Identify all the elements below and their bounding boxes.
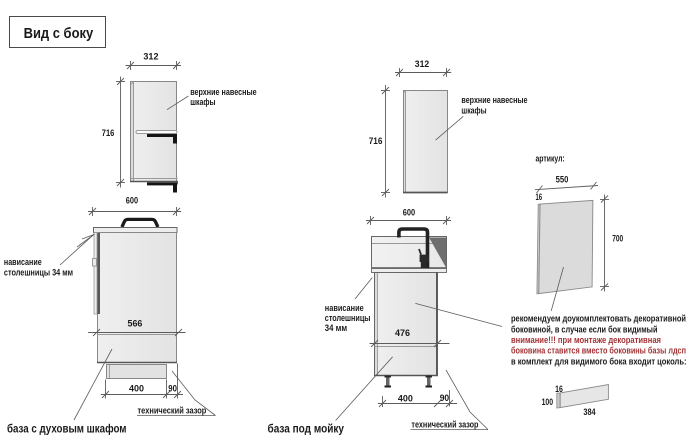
svg-text:600: 600 [403,208,415,218]
svg-text:34 мм: 34 мм [325,323,348,333]
svg-text:шкафы: шкафы [190,97,215,107]
svg-text:верхние навесные: верхние навесные [461,95,527,105]
svg-text:боковина ставится вместо боков: боковина ставится вместо боковины базы л… [511,346,686,356]
svg-text:шкафы: шкафы [461,105,486,115]
svg-text:столешницы 34 мм: столешницы 34 мм [4,267,73,277]
svg-text:566: 566 [128,318,143,328]
svg-text:верхние навесные: верхние навесные [190,87,256,97]
svg-text:700: 700 [612,233,623,243]
svg-text:16: 16 [536,192,543,202]
svg-text:384: 384 [583,407,595,417]
svg-text:нависание: нависание [325,303,364,313]
svg-text:312: 312 [143,51,158,61]
svg-text:база под мойку: база под мойку [268,424,345,436]
svg-text:716: 716 [102,128,115,138]
svg-text:600: 600 [126,196,138,206]
svg-text:476: 476 [395,328,410,338]
svg-text:400: 400 [129,383,144,393]
svg-text:рекомендуем доукомплектовать д: рекомендуем доукомплектовать декоративно… [511,314,686,324]
svg-text:90: 90 [168,383,177,393]
svg-text:16: 16 [555,384,563,394]
svg-text:312: 312 [415,59,429,69]
svg-text:столешницы: столешницы [325,313,371,323]
svg-text:в комплект для видимого бока в: в комплект для видимого бока входит цоко… [511,356,687,366]
svg-text:нависание: нависание [4,257,42,267]
svg-text:Вид с боку: Вид с боку [24,26,94,42]
svg-text:90: 90 [440,393,450,403]
svg-text:внимание!!! при монтаже декора: внимание!!! при монтаже декоративная [511,335,661,345]
svg-text:716: 716 [369,136,383,146]
svg-text:база с духовым шкафом: база с духовым шкафом [7,424,127,436]
svg-text:технический зазор: технический зазор [411,419,479,429]
svg-text:100: 100 [542,397,554,407]
svg-text:технический зазор: технический зазор [138,405,207,415]
svg-text:400: 400 [398,393,413,403]
svg-text:боковиной, в случае если бок в: боковиной, в случае если бок видимый [511,324,658,334]
svg-text:артикул:: артикул: [536,154,565,164]
svg-text:550: 550 [556,174,569,184]
